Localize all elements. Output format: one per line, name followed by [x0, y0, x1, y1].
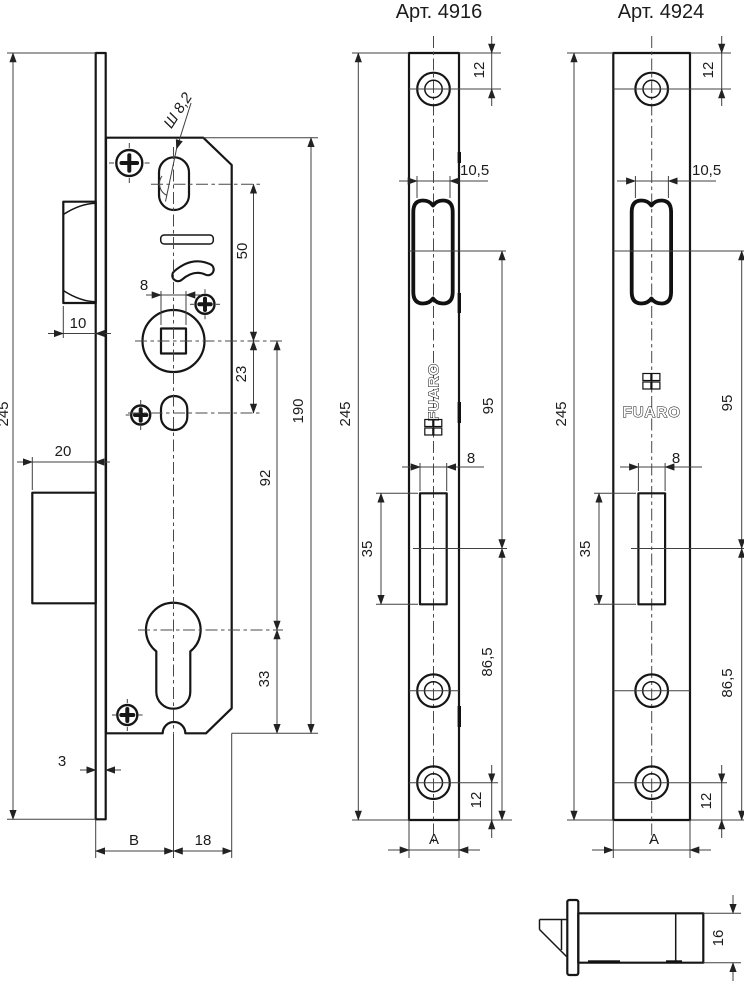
screw-bottom — [112, 699, 143, 731]
faceplate — [96, 53, 106, 819]
lock-side-view: 16 — [540, 895, 742, 981]
strike-plate-4916-view: 10,5 8 35 12 95 86,5 — [337, 36, 512, 858]
svg-text:FUARO: FUARO — [623, 404, 681, 421]
dim-10-5-p1: 10,5 — [460, 162, 489, 179]
dim-86-5-p1: 86,5 — [479, 647, 496, 676]
dim-95-p2: 95 — [719, 395, 736, 412]
dim-16-side: 16 — [710, 930, 727, 947]
lock-technical-drawing: Арт. 4916 Арт. 4924 — [0, 0, 744, 984]
dim-245-body: 245 — [0, 401, 12, 426]
title-art-4916: Арт. 4916 — [396, 1, 483, 23]
faceplate-side — [567, 900, 578, 975]
dim-8-p1: 8 — [467, 450, 475, 467]
curved-slot — [178, 267, 208, 275]
latch-side — [540, 920, 568, 957]
deadbolt — [32, 493, 95, 604]
dim-245-p1: 245 — [337, 401, 354, 426]
lock-case — [106, 138, 232, 734]
title-art-4924: Арт. 4924 — [618, 1, 705, 23]
dim-190: 190 — [290, 398, 307, 423]
dim-35-p1: 35 — [359, 541, 376, 558]
screw-upper-mid — [190, 289, 220, 319]
dim-3-faceplate: 3 — [58, 753, 66, 770]
dim-12-top-p1: 12 — [471, 62, 488, 79]
tab-mark — [588, 960, 620, 963]
dim-86-5-p2: 86,5 — [719, 668, 736, 697]
dim-8-p2: 8 — [672, 450, 680, 467]
technical-drawing-page: Арт. 4916 Арт. 4924 — [0, 0, 744, 984]
strike-plate-4924-view: 10,5 8 35 12 95 86,5 — [553, 36, 744, 858]
dim-20-bolt: 20 — [55, 443, 72, 460]
case-side — [578, 913, 703, 962]
dim-245-p2: 245 — [553, 401, 570, 426]
dim-18: 18 — [195, 832, 212, 849]
dim-12-bottom-p1: 12 — [468, 792, 485, 809]
lock-body-view: 245 50 23 92 33 190 8 10 20 — [0, 53, 318, 858]
dim-latch-hole-dia: Ш 8,2 — [161, 89, 197, 131]
dim-B-backset: B — [129, 832, 139, 849]
screw-top — [109, 143, 150, 183]
latch-bolt — [63, 202, 95, 303]
dim-10-5-p2: 10,5 — [692, 162, 721, 179]
dim-8-square: 8 — [140, 277, 148, 294]
svg-text:FUARO: FUARO — [426, 363, 443, 421]
dim-33: 33 — [256, 671, 273, 688]
dim-95-p1: 95 — [480, 398, 497, 415]
tab-mark — [666, 960, 682, 963]
dim-A-p2: A — [649, 831, 659, 848]
horizontal-slot — [161, 235, 214, 244]
fuaro-logo-vertical: FUARO — [425, 363, 443, 435]
dim-10-latch: 10 — [70, 315, 87, 332]
screw-lower-mid — [126, 400, 151, 430]
dim-12-bottom-p2: 12 — [698, 793, 715, 810]
dim-12-top-p2: 12 — [700, 62, 717, 79]
dim-A-p1: A — [429, 831, 439, 848]
dim-50: 50 — [234, 243, 251, 260]
dim-35-p2: 35 — [577, 541, 594, 558]
dim-92: 92 — [257, 470, 274, 487]
dim-23: 23 — [233, 366, 250, 383]
